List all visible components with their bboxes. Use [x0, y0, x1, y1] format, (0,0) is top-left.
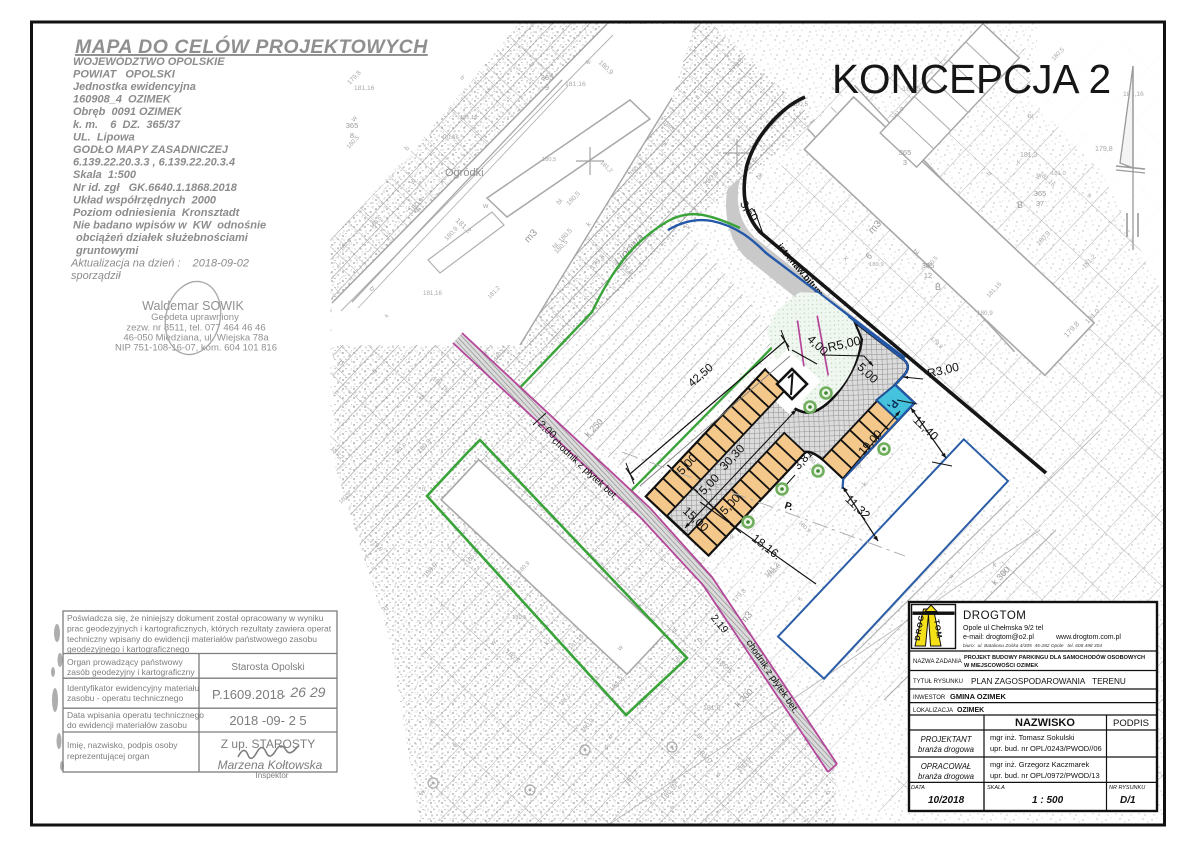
svg-text:365: 365 — [899, 148, 912, 157]
svg-text:Jednostka ewidencyjna: Jednostka ewidencyjna — [73, 81, 196, 93]
svg-text:Układ współrzędnych 2000: Układ współrzędnych 2000 — [73, 194, 217, 206]
svg-text:160908_4 OZIMEK: 160908_4 OZIMEK — [73, 94, 172, 106]
svg-text:INWESTOR: INWESTOR — [913, 695, 946, 701]
svg-text:NR RYSUNKU: NR RYSUNKU — [1109, 785, 1145, 791]
svg-text:mgr inż. Tomasz Sokulski: mgr inż. Tomasz Sokulski — [990, 733, 1075, 742]
svg-text:365: 365 — [541, 73, 554, 82]
svg-text:NAZWISKO: NAZWISKO — [1015, 717, 1075, 729]
svg-text:10/2018: 10/2018 — [928, 795, 965, 806]
svg-text:GMINA OZIMEK: GMINA OZIMEK — [950, 692, 1007, 701]
svg-text:Skala 1:500: Skala 1:500 — [73, 169, 137, 181]
svg-text:Starosta Opolski: Starosta Opolski — [231, 662, 304, 673]
svg-text:mgr inż. Grzegorz Kaczmarek: mgr inż. Grzegorz Kaczmarek — [990, 760, 1089, 769]
svg-text:Nie badano wpisów w KW odnoś: Nie badano wpisów w KW odnośnie — [73, 220, 266, 232]
svg-text:TYTUŁ RYSUNKU: TYTUŁ RYSUNKU — [913, 679, 963, 685]
svg-text:prac geodezyjnych i kartografi: prac geodezyjnych i kartograficznych, kt… — [67, 624, 332, 634]
svg-text:NAZWA ZADANIA: NAZWA ZADANIA — [913, 659, 962, 665]
svg-text:1 : 500: 1 : 500 — [1032, 795, 1064, 806]
svg-text:Poświadcza się, że niniejszy d: Poświadcza się, że niniejszy dokument zo… — [67, 613, 324, 623]
svg-text:www.drogtom.com.pl: www.drogtom.com.pl — [1055, 634, 1121, 641]
svg-text:Aktualizacja na dzień : 201: Aktualizacja na dzień : 2018-09-02 — [70, 257, 249, 269]
svg-text:GODŁO MAPY ZASADNICZEJ: GODŁO MAPY ZASADNICZEJ — [73, 144, 229, 156]
svg-text:gruntowymi: gruntowymi — [73, 245, 139, 257]
svg-text:181,16: 181,16 — [354, 85, 375, 92]
svg-text:181,2: 181,2 — [1020, 152, 1037, 159]
svg-text:zasób geodezyjny i kartografic: zasób geodezyjny i kartograficzny — [67, 667, 195, 677]
svg-text:upr. bud. nr OPL/0972/PWOD/13: upr. bud. nr OPL/0972/PWOD/13 — [990, 771, 1100, 780]
svg-text:181,16: 181,16 — [460, 115, 477, 121]
svg-text:OPRACOWAŁ: OPRACOWAŁ — [921, 762, 972, 771]
svg-text:w: w — [669, 804, 675, 811]
svg-text:Ogródki: Ogródki — [445, 167, 484, 179]
svg-text:Waldemar SOWIK: Waldemar SOWIK — [142, 299, 244, 313]
svg-text:180,5: 180,5 — [512, 615, 527, 621]
svg-text:9: 9 — [545, 83, 549, 92]
svg-text:branża drogowa: branża drogowa — [918, 772, 975, 781]
svg-text:Inspektor: Inspektor — [256, 771, 289, 780]
svg-text:zasobu - operatu technicznego: zasobu - operatu technicznego — [67, 693, 184, 703]
svg-text:PROJEKTANT: PROJEKTANT — [921, 735, 973, 744]
svg-text:6.139.22.20.3.3 , 6.139.22.20.: 6.139.22.20.3.3 , 6.139.22.20.3.4 — [73, 157, 235, 169]
svg-text:MAPA DO CELÓW PROJEKTOWYCH: MAPA DO CELÓW PROJEKTOWYCH — [75, 35, 428, 58]
svg-text:SKALA: SKALA — [987, 785, 1005, 791]
svg-text:Obręb 0091 OZIMEK: Obręb 0091 OZIMEK — [73, 106, 183, 118]
svg-text:W MIEJSCOWOŚCI OZIMEK: W MIEJSCOWOŚCI OZIMEK — [964, 662, 1038, 669]
svg-text:Imię, nazwisko, podpis osoby: Imię, nazwisko, podpis osoby — [67, 740, 178, 750]
svg-text:e-mail: drogtom@o2.pl: e-mail: drogtom@o2.pl — [963, 634, 1034, 641]
svg-text:3: 3 — [903, 158, 907, 167]
svg-text:PLAN ZAGOSPODAROWANIA TERENU: PLAN ZAGOSPODAROWANIA TERENU — [971, 677, 1126, 686]
svg-text:Z up. STAROSTY: Z up. STAROSTY — [221, 737, 315, 751]
svg-text:PROJEKT BUDOWY PARKINGU DLA SA: PROJEKT BUDOWY PARKINGU DLA SAMOCHODÓW O… — [964, 653, 1145, 661]
svg-text:WOJEWÓDZTWO OPOLSKIE: WOJEWÓDZTWO OPOLSKIE — [73, 55, 225, 68]
svg-text:. 26 29: . 26 29 — [283, 684, 326, 700]
svg-text:180,5: 180,5 — [542, 157, 556, 163]
svg-text:365: 365 — [1034, 189, 1047, 198]
svg-text:geodezyjnego i kartograficzneg: geodezyjnego i kartograficznego — [67, 644, 190, 654]
svg-text:KONCEPCJA 2: KONCEPCJA 2 — [832, 56, 1111, 102]
svg-text:D/1: D/1 — [1120, 795, 1136, 806]
svg-text:reprezentującej organ: reprezentującej organ — [67, 751, 149, 761]
svg-text:PODPIS: PODPIS — [1113, 718, 1149, 729]
svg-text:UL. Lipowa: UL. Lipowa — [73, 131, 135, 143]
svg-text:biuro: ul. Batalionu Zośka 4/: biuro: ul. Batalionu Zośka 4/305 45-282 … — [963, 643, 1102, 649]
svg-text:obciążeń działek służebnościam: obciążeń działek służebnościami — [73, 232, 249, 244]
svg-text:181,0: 181,0 — [1051, 171, 1066, 177]
svg-text:DATA: DATA — [911, 785, 925, 791]
svg-text:12: 12 — [924, 271, 932, 280]
svg-text:sporządził: sporządził — [71, 270, 121, 282]
svg-text:181,16: 181,16 — [442, 135, 459, 141]
svg-text:181,0: 181,0 — [703, 705, 721, 712]
svg-text:B: B — [935, 282, 941, 292]
svg-text:Poziom odniesienia Kronsztadt: Poziom odniesienia Kronsztadt — [73, 207, 241, 219]
svg-text:k: k — [993, 562, 997, 569]
svg-text:OZIMEK: OZIMEK — [957, 707, 984, 714]
svg-text:w: w — [482, 201, 489, 210]
svg-text:w: w — [452, 743, 458, 749]
svg-text:Organ prowadzący państwowy: Organ prowadzący państwowy — [67, 657, 184, 667]
svg-text:DROGTOM: DROGTOM — [963, 610, 1026, 622]
svg-text:LOKALIZACJA: LOKALIZACJA — [913, 708, 953, 714]
svg-text:181,16: 181,16 — [565, 81, 586, 88]
svg-text:techniczny wpisany do ewidencj: techniczny wpisany do ewidencji materiał… — [67, 634, 317, 644]
svg-text:Opole ul Chełmska 9/2 tel: Opole ul Chełmska 9/2 tel — [963, 625, 1044, 632]
svg-text:Data wpisania operatu technicz: Data wpisania operatu technicznego — [67, 710, 204, 720]
svg-text:do ewidencji materiałów zasobu: do ewidencji materiałów zasobu — [67, 720, 187, 730]
svg-text:branża drogowa: branża drogowa — [918, 745, 975, 754]
svg-text:181,16: 181,16 — [423, 290, 442, 297]
svg-text:B: B — [1017, 200, 1023, 210]
svg-text:POWIAT OPOLSKI: POWIAT OPOLSKI — [73, 68, 176, 80]
svg-text:Geodeta uprawniony: Geodeta uprawniony — [151, 312, 239, 323]
svg-text:180,9: 180,9 — [869, 262, 884, 268]
svg-text:179,8: 179,8 — [1095, 145, 1113, 153]
svg-text:Identyfikator ewidencyjny mate: Identyfikator ewidencyjny materiału — [67, 683, 200, 693]
svg-text:bł.: bł. — [1028, 113, 1035, 120]
svg-text:w: w — [585, 59, 591, 66]
svg-text:180,9: 180,9 — [977, 310, 993, 317]
svg-text:2018 -09- 2 5: 2018 -09- 2 5 — [229, 713, 306, 728]
svg-text:NIP 751-108-16-07, kom. 604 10: NIP 751-108-16-07, kom. 604 101 816 — [115, 343, 277, 354]
svg-text:P.1609.2018: P.1609.2018 — [212, 687, 284, 702]
svg-text:Marzena Kołtowska: Marzena Kołtowska — [218, 758, 323, 772]
svg-text:upr. bud. nr OPL/0243/PWOD//06: upr. bud. nr OPL/0243/PWOD//06 — [990, 744, 1102, 753]
svg-text:37: 37 — [1036, 199, 1044, 208]
svg-text:Nr id. zgł GK.6640.1.1868.20: Nr id. zgł GK.6640.1.1868.2018 — [73, 182, 238, 194]
svg-text:k. m. 6 DZ. 365/37: k. m. 6 DZ. 365/37 — [73, 119, 181, 131]
